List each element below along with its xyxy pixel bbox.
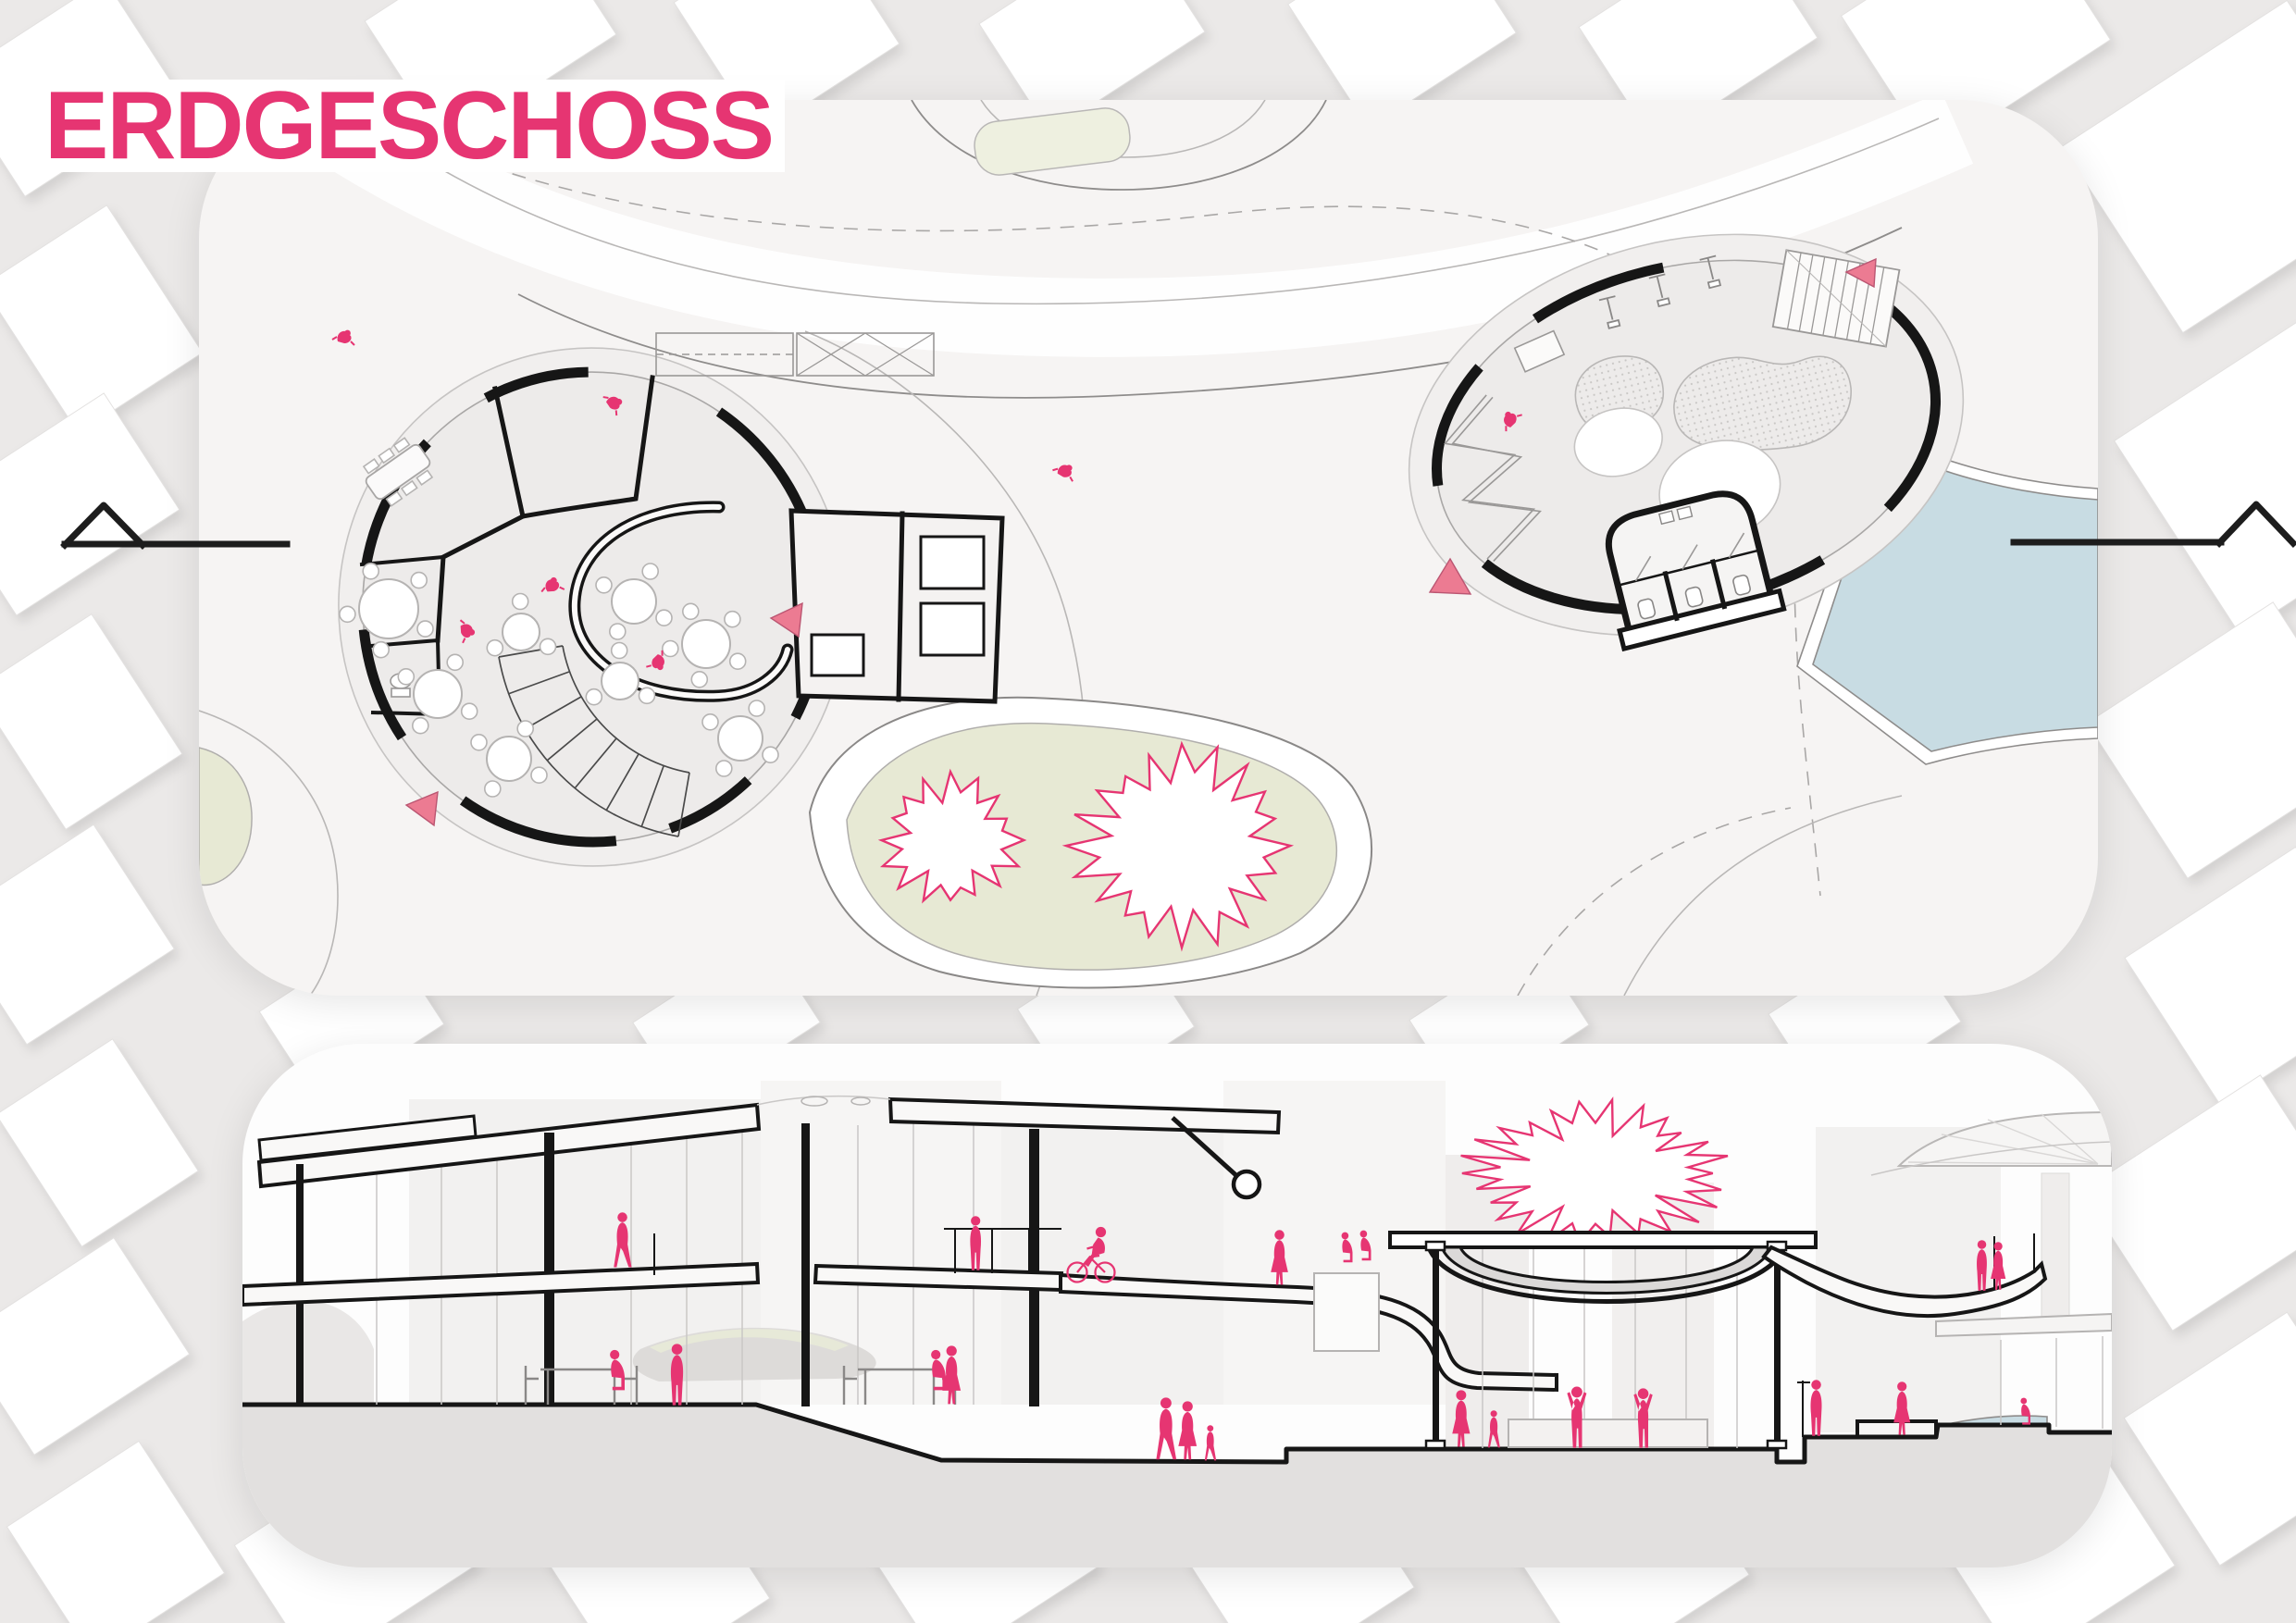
building-section-panel <box>242 1044 2112 1567</box>
site-plan-panel <box>199 100 2098 996</box>
page-title: ERDGESCHOSS <box>44 78 773 174</box>
lift-shaft <box>1314 1273 1379 1351</box>
title-band: ERDGESCHOSS <box>44 80 785 172</box>
neighbor-roof <box>912 100 1326 190</box>
bench-block <box>1857 1421 1936 1437</box>
erdgeschoss-sheet: ERDGESCHOSS <box>0 0 2296 1623</box>
stage <box>1508 1419 1707 1447</box>
lawn-island <box>810 698 1371 988</box>
roof-spike-ball <box>1234 1171 1260 1197</box>
railing <box>1797 1381 1810 1437</box>
pavilion-roof <box>1390 1233 1816 1247</box>
lawn-edge-blob <box>199 748 252 886</box>
